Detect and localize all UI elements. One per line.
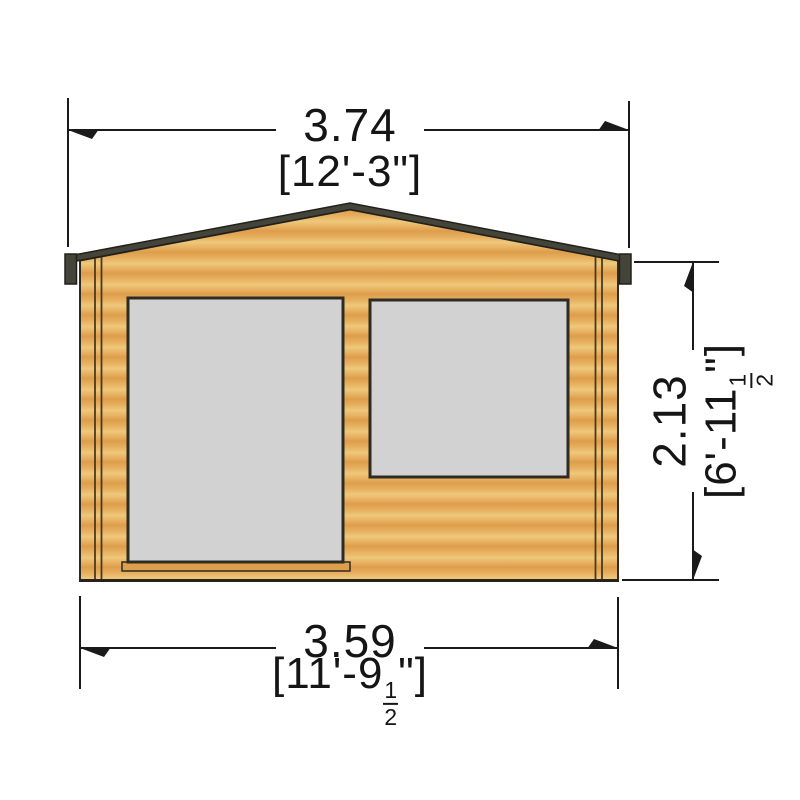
imperial-prefix: [6'-11 — [696, 388, 745, 499]
fascia-right — [620, 254, 632, 284]
door — [128, 298, 343, 562]
fraction: 12 — [383, 678, 398, 729]
arrowhead-left — [68, 130, 98, 139]
cabin-front-elevation — [65, 203, 631, 581]
dimension-right-labels: 2.13 [6'-1112"] — [643, 343, 776, 499]
imperial-suffix: "] — [696, 343, 745, 373]
imperial-suffix: "] — [398, 649, 428, 698]
fraction-numerator: 1 — [726, 373, 752, 388]
imperial-prefix: [11'-9 — [272, 649, 383, 698]
arrowhead-bottom — [693, 550, 702, 580]
arrowhead-right — [588, 639, 618, 648]
arrowhead-left — [80, 648, 110, 657]
fraction-denominator: 2 — [752, 374, 776, 387]
window — [370, 300, 568, 477]
arrowhead-top — [684, 262, 693, 292]
arrowhead-right — [599, 121, 629, 130]
dimension-right-metric-label: 2.13 — [643, 343, 695, 499]
fraction-numerator: 1 — [383, 678, 398, 704]
fascia-left — [65, 254, 77, 284]
dimension-top-metric-label: 3.74 — [303, 98, 397, 152]
dimension-bottom-imperial-label: [11'-912"] — [272, 649, 428, 729]
fraction-denominator: 2 — [384, 705, 397, 729]
cabin-dimension-diagram: 3.74 [12'-3"] 3.59 [11'-912"] 2.13 [6'-1… — [0, 0, 800, 800]
dimension-top-imperial-label: [12'-3"] — [278, 147, 423, 197]
fraction: 12 — [726, 373, 777, 388]
dimension-right-imperial-label: [6'-1112"] — [695, 343, 776, 499]
